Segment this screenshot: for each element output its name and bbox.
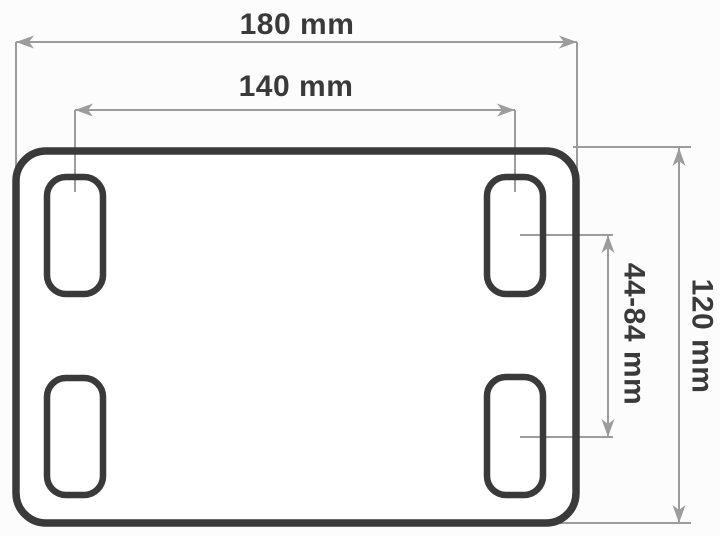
dimension-label-slot-spacing-vertical: 44-84 mm xyxy=(618,263,651,405)
dimension-label-width-overall: 180 mm xyxy=(240,8,355,41)
drawing-canvas: 180 mm 140 mm 120 mm 44-84 mm xyxy=(0,0,720,536)
dimension-label-slot-spacing-horizontal: 140 mm xyxy=(239,70,354,103)
mounting-plate-diagram: 180 mm 140 mm 120 mm 44-84 mm xyxy=(0,0,720,536)
dimension-label-height-overall: 120 mm xyxy=(686,279,719,394)
